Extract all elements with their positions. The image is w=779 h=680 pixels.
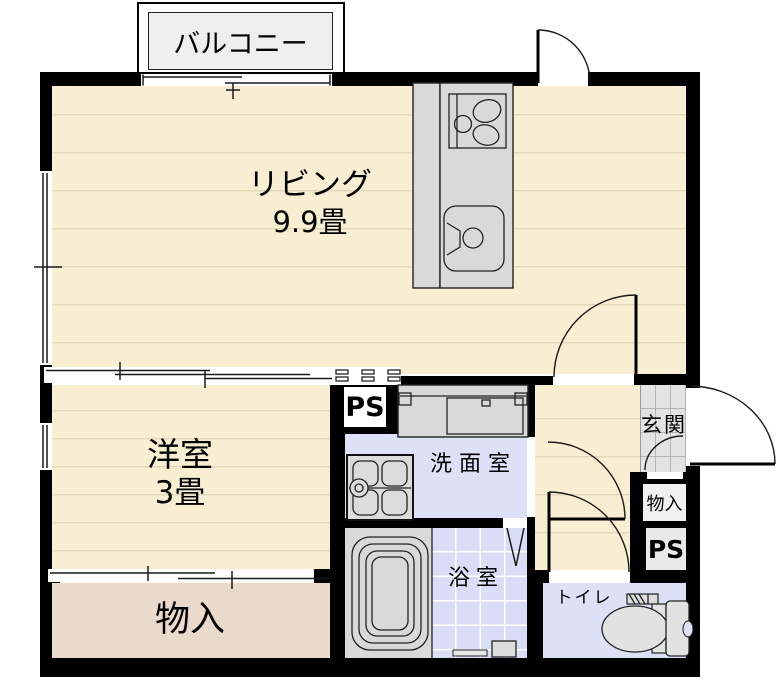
bathtub-icon [352,528,432,658]
kitchen-counter [413,83,513,288]
living-bedroom-sliding-door-symbol [46,362,400,388]
bath-drain [453,650,487,656]
bedroom-size: 3畳 [120,476,240,512]
bedroom-storage-sliding-door-symbol [50,566,328,589]
balcony-sliding-window-symbol [143,75,330,100]
living-hall-door-swing [554,295,636,377]
living-label: リビング [230,168,390,204]
bath-stool [492,641,516,657]
genkan-storage-door-swing [645,436,683,470]
service-door-swing [538,30,590,83]
living-window-symbol [34,173,62,363]
washing-machine-pan-icon [347,455,413,520]
fixtures-overlay [0,0,779,680]
bedroom-label: 洋室 [120,436,240,474]
entrance-door-swing [690,386,775,464]
living-size: 9.9畳 [230,206,390,239]
washroom-label: 洗面室 [405,452,535,477]
washroom-door-swing [548,442,625,519]
entrance-label: 玄関 [636,413,692,437]
bathroom-folding-door [507,528,524,566]
toilet-door-swing [549,492,629,572]
floor-plan: バルコニー PS 物入 PS [0,0,779,680]
washbasin-counter-icon [398,385,528,437]
bedroom-window-symbol [43,425,47,468]
toilet-label: トイレ [548,589,620,609]
storage-bottom-label: 物入 [130,600,250,640]
bathroom-label: 浴室 [428,566,518,591]
